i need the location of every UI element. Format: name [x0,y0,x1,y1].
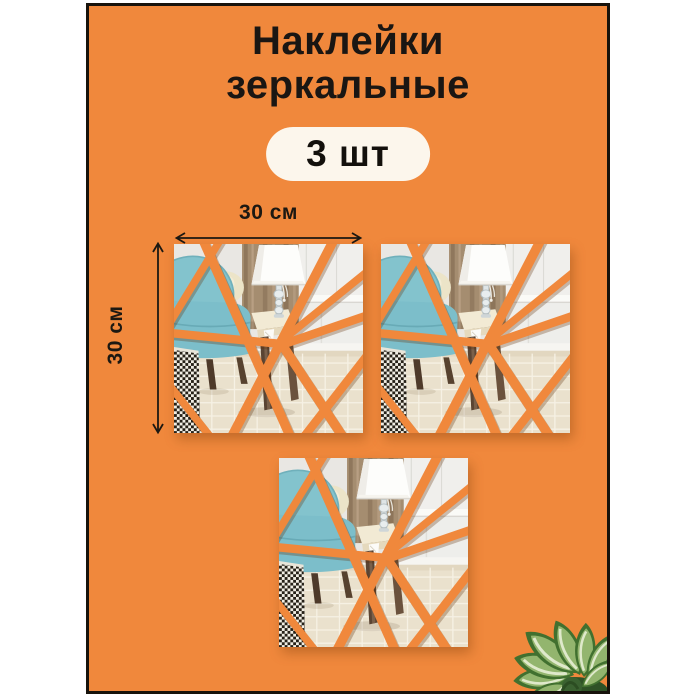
height-arrow-icon [151,241,165,435]
quantity-badge: 3 шт [266,127,430,181]
width-dimension-label: 30 см [174,201,363,225]
product-title: Наклейки зеркальные [89,19,607,107]
mirror-sticker-preview-3 [279,458,468,647]
mirror-sticker-preview-1 [174,244,363,433]
product-card: Наклейки зеркальные 3 шт 30 см 30 см [86,3,610,694]
title-line-1: Наклейки [89,19,607,63]
width-arrow-icon [174,231,363,245]
plant-image [470,591,610,694]
product-image-page: Наклейки зеркальные 3 шт 30 см 30 см [0,0,700,700]
mirror-sticker-preview-2 [381,244,570,433]
height-dimension-label: 30 см [104,280,128,390]
title-line-2: зеркальные [89,63,607,107]
